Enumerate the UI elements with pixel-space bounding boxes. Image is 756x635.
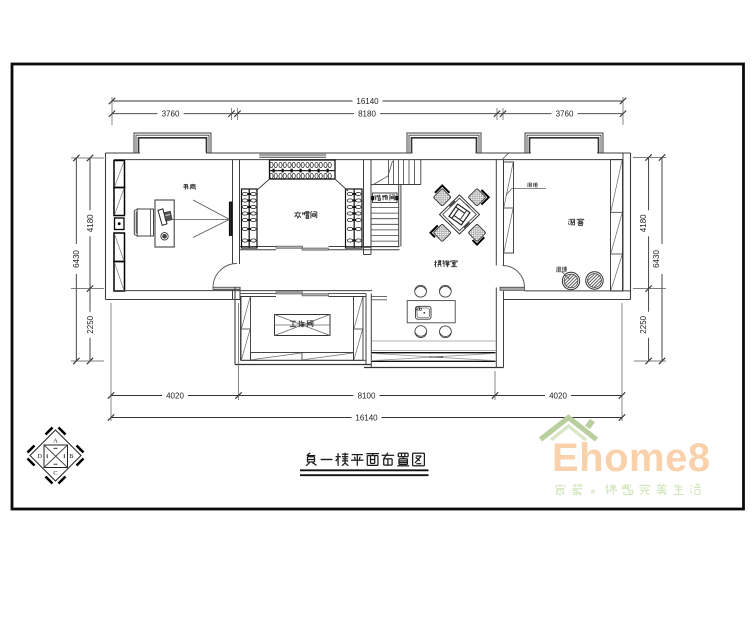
svg-text:6430: 6430 bbox=[72, 250, 81, 268]
svg-text:C: C bbox=[53, 470, 57, 477]
svg-text:D: D bbox=[37, 453, 42, 460]
svg-text:2250: 2250 bbox=[639, 315, 648, 333]
svg-text:4020: 4020 bbox=[166, 391, 184, 400]
svg-text:A: A bbox=[53, 437, 58, 444]
svg-text:16140: 16140 bbox=[355, 413, 378, 422]
svg-text:Ehome8: Ehome8 bbox=[552, 436, 711, 480]
svg-text:3760: 3760 bbox=[162, 110, 180, 119]
svg-text:3760: 3760 bbox=[556, 110, 574, 119]
svg-text:2250: 2250 bbox=[86, 315, 95, 333]
svg-text:4020: 4020 bbox=[549, 391, 567, 400]
svg-text:B: B bbox=[69, 453, 73, 460]
svg-text:8180: 8180 bbox=[358, 110, 376, 119]
svg-text:6430: 6430 bbox=[652, 250, 661, 268]
svg-text:4180: 4180 bbox=[639, 214, 648, 232]
svg-text:16140: 16140 bbox=[356, 97, 379, 106]
svg-text:4180: 4180 bbox=[86, 214, 95, 232]
svg-text:8100: 8100 bbox=[358, 391, 376, 400]
